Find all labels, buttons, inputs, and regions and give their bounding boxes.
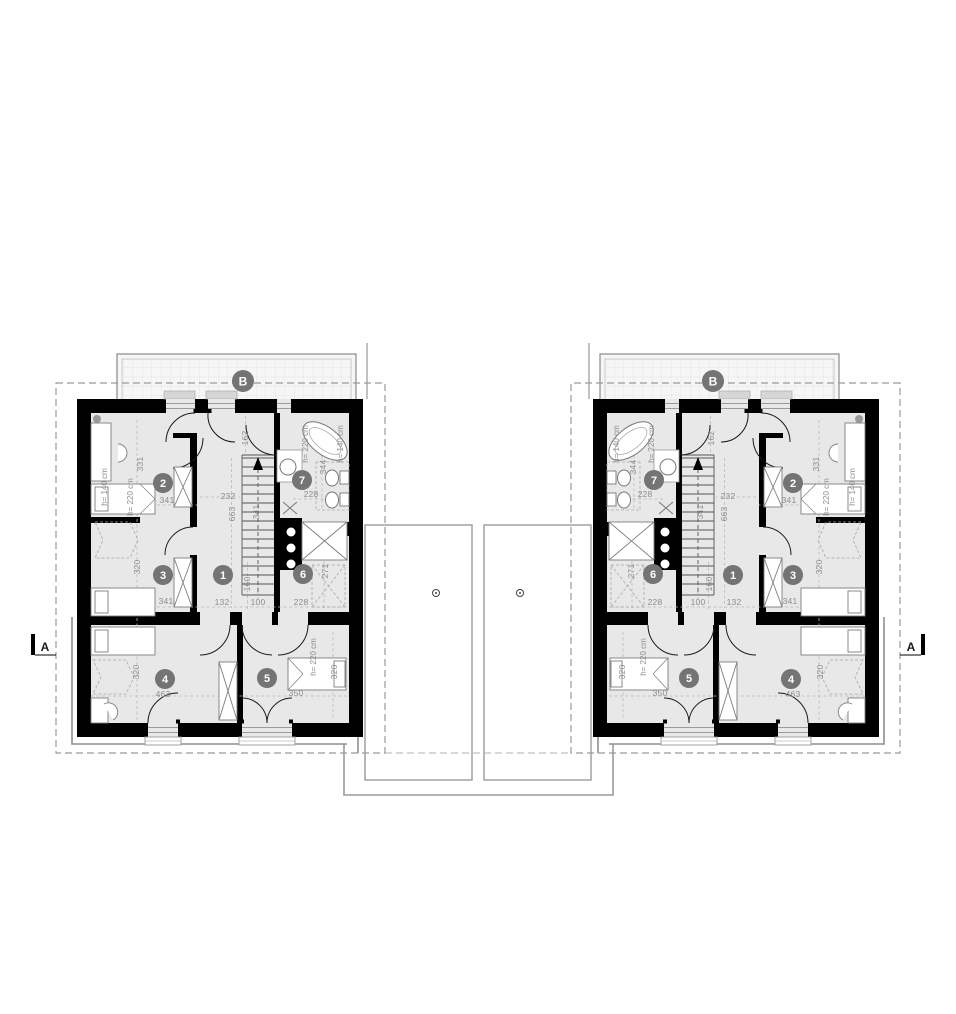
dim-room4-depth: 320 <box>815 665 825 680</box>
dim-room2-depth: 331 <box>135 457 145 472</box>
dim-room5-depth: 320 <box>617 665 627 680</box>
dim-room7-width: 228 <box>638 489 653 499</box>
dim-room3-depth: 320 <box>814 560 824 575</box>
dim-stair-232: 232 <box>721 491 736 501</box>
room-7-number: 7 <box>299 475 305 487</box>
room-6-number: 6 <box>650 569 656 581</box>
dim-hall-162: 162 <box>240 431 250 446</box>
height-room7-140: h= 140 cm <box>612 425 621 463</box>
dim-room2-depth: 331 <box>811 457 821 472</box>
dim-room6-depth: 271 <box>320 564 330 579</box>
dim-room7-width: 228 <box>304 489 319 499</box>
dim-room2-width: 341 <box>160 495 175 505</box>
height-room2-140: h= 140 cm <box>100 468 109 506</box>
room-2-number: 2 <box>790 478 796 490</box>
dim-hall-132: 132 <box>215 597 230 607</box>
dim-room6-width: 228 <box>294 597 309 607</box>
room-5-number: 5 <box>686 673 692 685</box>
height-room7-220: h= 220 cm <box>647 425 656 463</box>
height-room5-220: h= 220 cm <box>639 638 648 676</box>
dim-stair-341: 341 <box>251 505 261 520</box>
section-marker-a-left: A <box>33 634 56 655</box>
dim-stair-341: 341 <box>695 505 705 520</box>
section-a-label: A <box>41 640 50 654</box>
height-room7-140: h= 140 cm <box>336 425 345 463</box>
room-1-number: 1 <box>730 570 736 582</box>
height-room2-140: h= 140 cm <box>848 468 857 506</box>
dim-stair-663: 663 <box>227 507 237 522</box>
floor-plan-page: A A B 1 2 3 4 5 6 7 341 228 232 341 132 … <box>0 0 956 1014</box>
dim-room3-width: 341 <box>783 596 798 606</box>
height-room5-220: h= 220 cm <box>309 638 318 676</box>
dim-room3-depth: 320 <box>132 560 142 575</box>
dim-room3-width: 341 <box>159 596 174 606</box>
room-4-number: 4 <box>162 674 169 686</box>
height-room7-220: h= 220 cm <box>301 425 310 463</box>
middle-lower-roof <box>344 525 613 795</box>
dim-hall-160: 160 <box>704 577 714 592</box>
room-5-number: 5 <box>264 673 270 685</box>
dim-hall-100: 100 <box>251 597 266 607</box>
room-6-number: 6 <box>300 569 306 581</box>
floor-plan-drawing: A A B 1 2 3 4 5 6 7 341 228 232 341 132 … <box>0 0 956 1014</box>
dim-room5-depth: 320 <box>329 665 339 680</box>
dim-room7-depth: 344 <box>628 460 638 475</box>
dim-room2-width: 341 <box>782 495 797 505</box>
section-b-marker: B <box>239 375 248 389</box>
dim-stair-232: 232 <box>221 491 236 501</box>
section-marker-a-right: A <box>900 634 923 655</box>
room-1-number: 1 <box>220 570 226 582</box>
room-2-number: 2 <box>160 478 166 490</box>
dim-room6-width: 228 <box>648 597 663 607</box>
dim-hall-162: 162 <box>706 431 716 446</box>
dim-room7-depth: 344 <box>318 460 328 475</box>
section-a-label: A <box>907 640 916 654</box>
right-unit <box>571 343 900 753</box>
dim-room5-width: 350 <box>653 688 668 698</box>
dim-hall-132: 132 <box>727 597 742 607</box>
room-3-number: 3 <box>790 570 796 582</box>
dim-hall-160: 160 <box>242 577 252 592</box>
room-4-number: 4 <box>788 674 795 686</box>
room-7-number: 7 <box>651 475 657 487</box>
dim-room4-depth: 320 <box>131 665 141 680</box>
dim-stair-663: 663 <box>719 507 729 522</box>
dim-room4-width: 463 <box>786 689 801 699</box>
dim-room4-width: 463 <box>156 689 171 699</box>
section-b-marker: B <box>709 375 718 389</box>
dim-room6-depth: 271 <box>626 564 636 579</box>
room-3-number: 3 <box>160 570 166 582</box>
height-room2-220: h= 220 cm <box>822 478 831 516</box>
dim-room5-width: 350 <box>289 688 304 698</box>
left-unit <box>56 343 385 753</box>
height-room2-220: h= 220 cm <box>126 478 135 516</box>
dim-hall-100: 100 <box>691 597 706 607</box>
